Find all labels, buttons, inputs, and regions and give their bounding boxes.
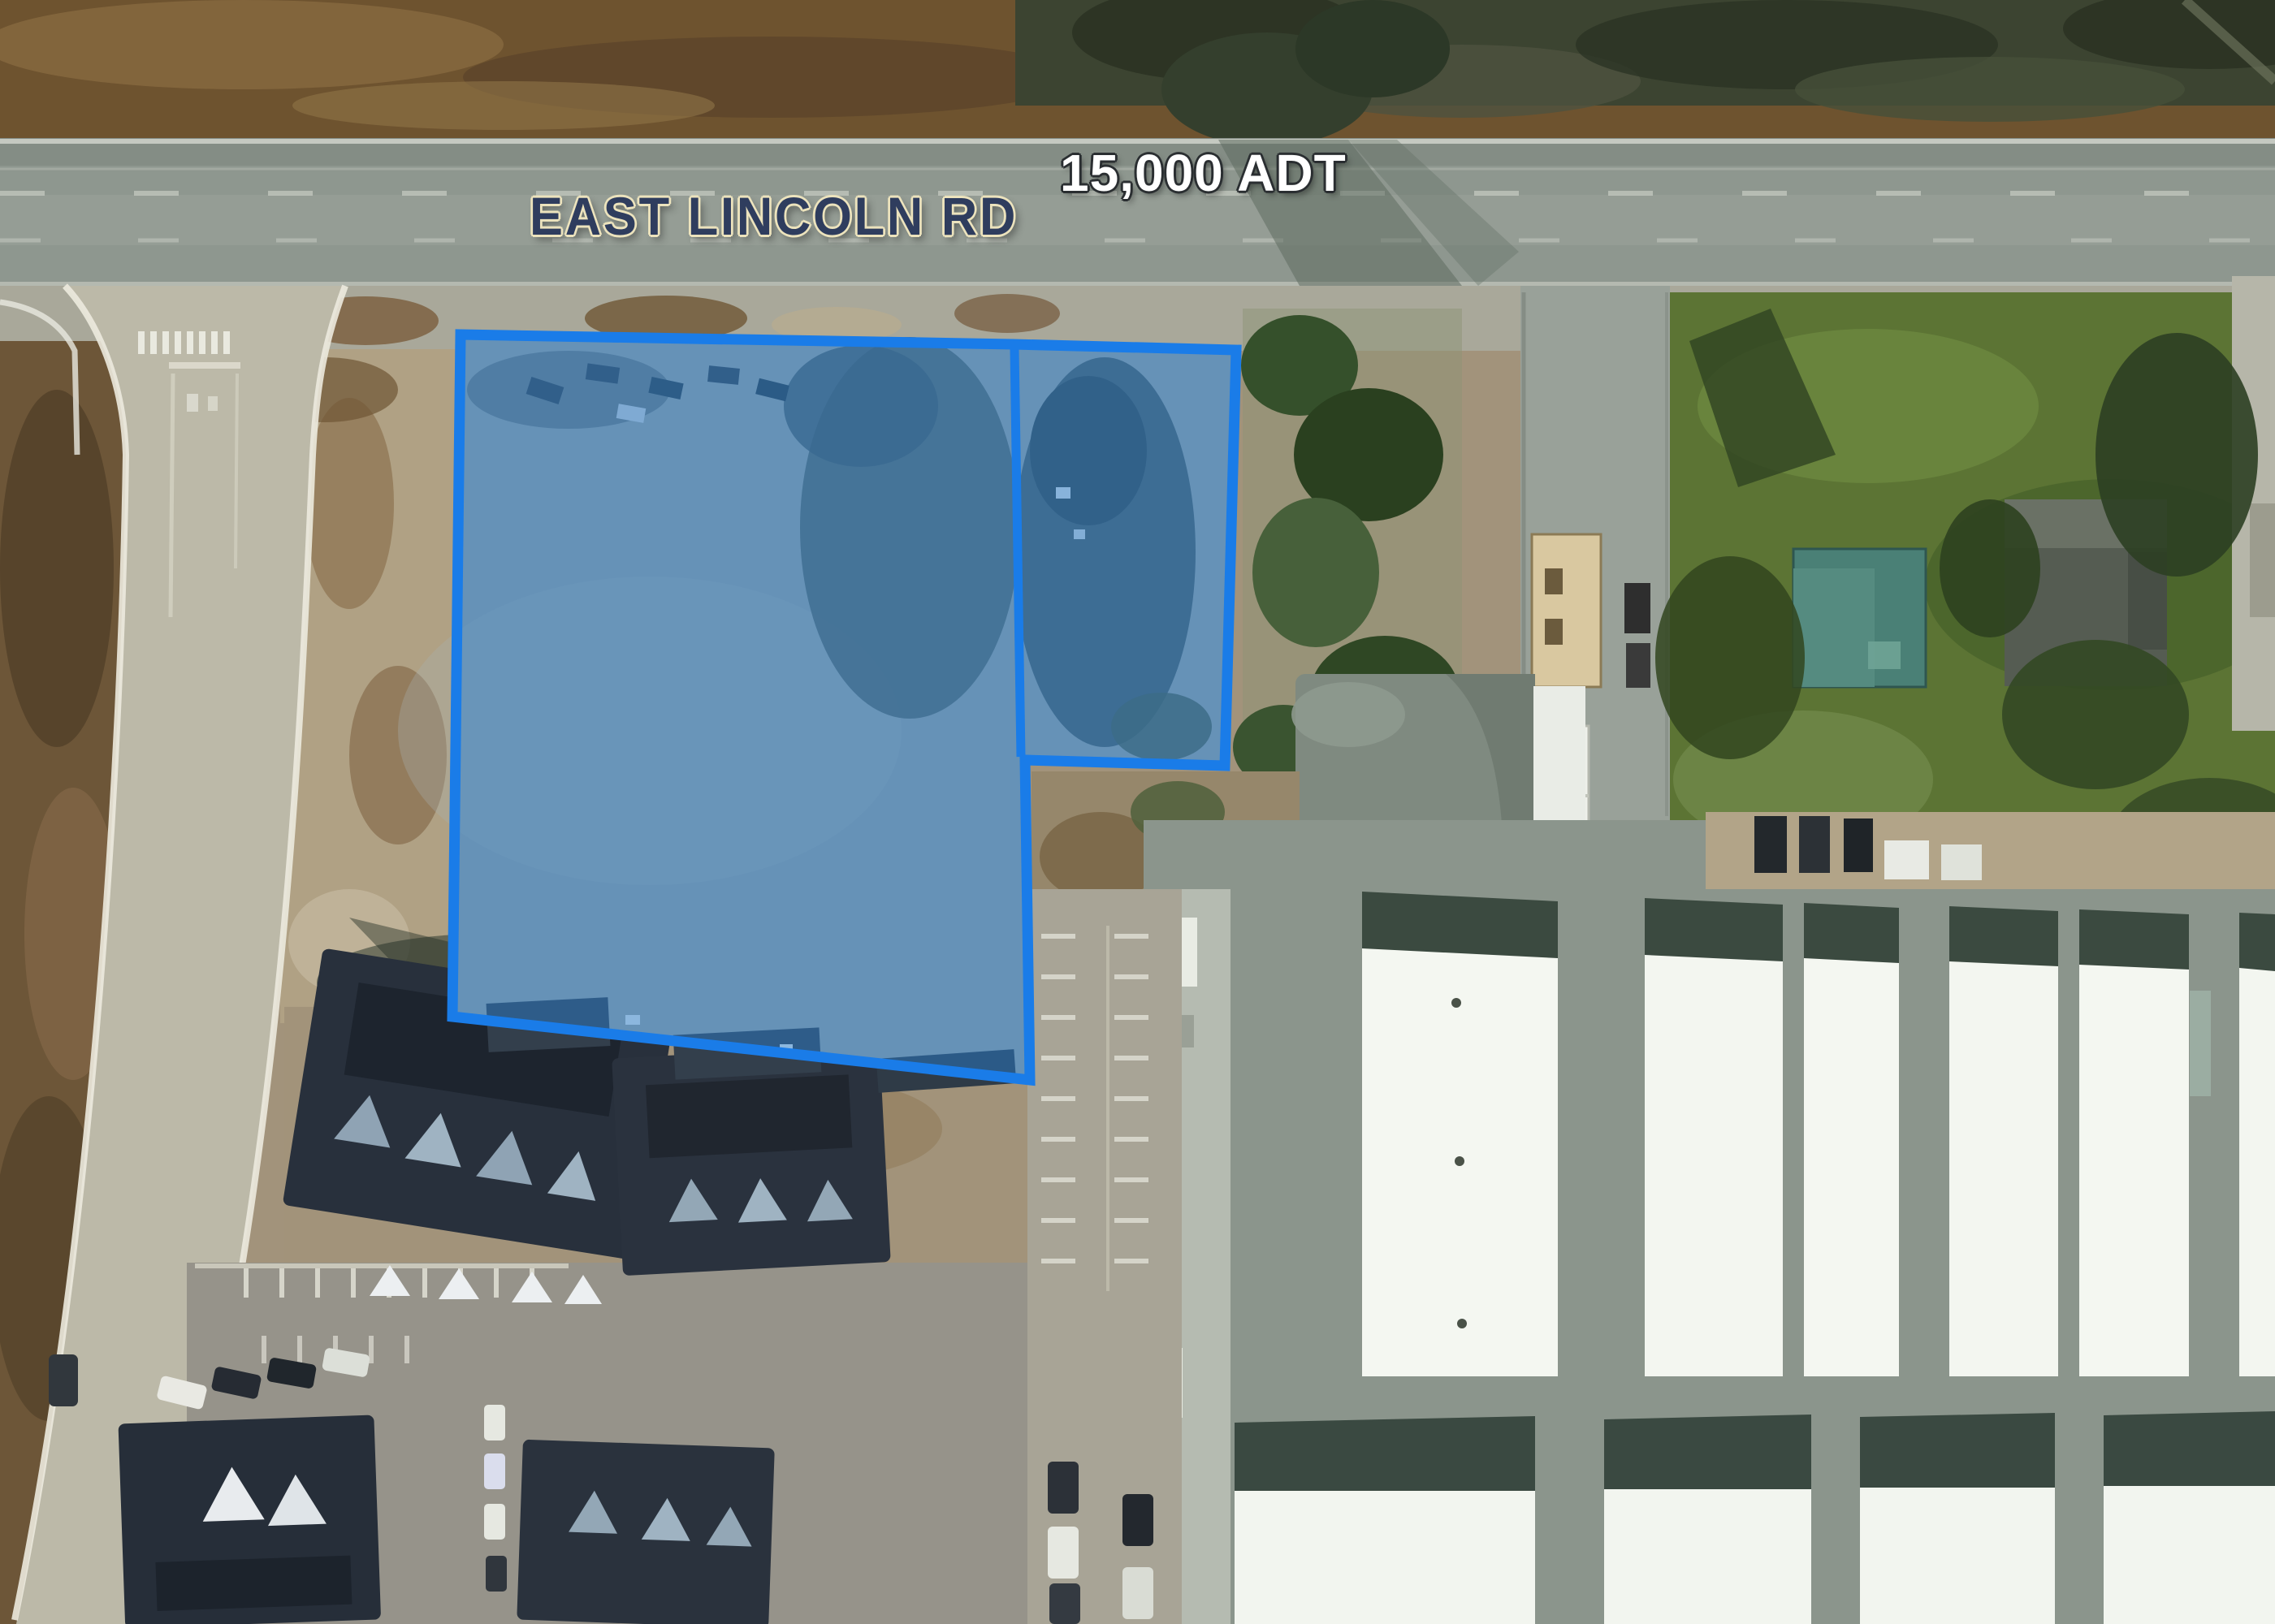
house-far-east [2250, 503, 2275, 617]
turn-arrow-marking [187, 394, 198, 412]
apartment-building-3 [118, 1415, 381, 1624]
stop-bar [169, 362, 240, 369]
parking-column-center [1027, 889, 1182, 1624]
apartment-building-4 [517, 1440, 775, 1624]
traffic-count-label: 15,000 ADT [1060, 147, 1347, 199]
apartment-building-2 [612, 1044, 891, 1276]
parked-trailer [1754, 816, 1787, 873]
aerial-map: EAST LINCOLN RD 15,000 ADT [0, 0, 2275, 1624]
satellite-base [0, 0, 2275, 1624]
storage-facility [1137, 812, 2275, 1624]
shed-tan-roof [1532, 534, 1601, 687]
storage-row-1 [1362, 892, 2275, 1376]
road-name-label: EAST LINCOLN RD [530, 189, 1018, 243]
car-on-road [49, 1354, 78, 1406]
storage-row-2 [1235, 1411, 2275, 1624]
house-teal-roof [1793, 549, 1926, 687]
field-north [0, 0, 2275, 146]
parked-car [1624, 583, 1650, 633]
